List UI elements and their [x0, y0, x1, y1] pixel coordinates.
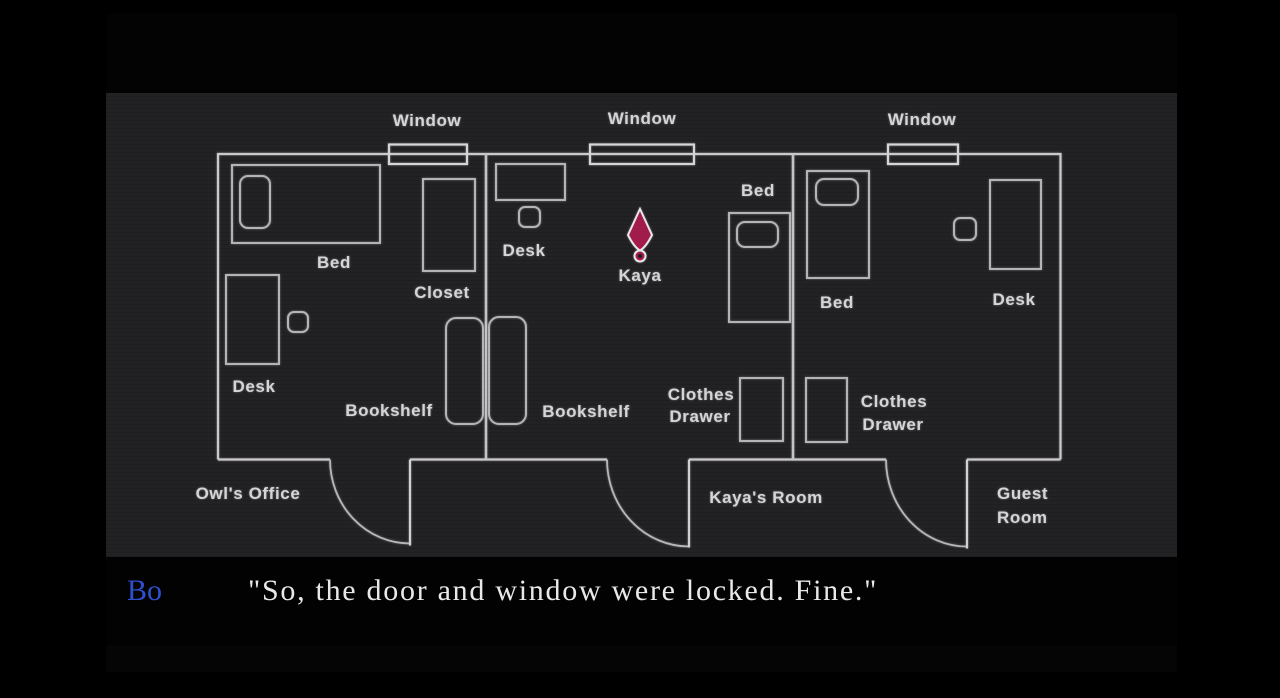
svg-text:Desk: Desk: [502, 241, 545, 260]
svg-text:Drawer: Drawer: [862, 415, 923, 434]
svg-text:Drawer: Drawer: [669, 407, 730, 426]
svg-text:Owl's Office: Owl's Office: [196, 484, 301, 503]
svg-text:Window: Window: [608, 109, 677, 128]
svg-text:Clothes: Clothes: [668, 385, 735, 404]
svg-text:Room: Room: [997, 508, 1048, 527]
svg-text:Bookshelf: Bookshelf: [345, 401, 433, 420]
svg-text:Window: Window: [393, 111, 462, 130]
svg-text:Guest: Guest: [997, 484, 1048, 503]
svg-text:Clothes: Clothes: [861, 392, 928, 411]
svg-text:Kaya: Kaya: [618, 266, 661, 285]
svg-text:Bookshelf: Bookshelf: [542, 402, 630, 421]
svg-text:Desk: Desk: [992, 290, 1035, 309]
svg-text:Bed: Bed: [741, 181, 775, 200]
svg-text:Desk: Desk: [232, 377, 275, 396]
svg-text:Window: Window: [888, 110, 957, 129]
svg-text:Bed: Bed: [820, 293, 854, 312]
svg-text:Bed: Bed: [317, 253, 351, 272]
svg-text:Kaya's Room: Kaya's Room: [709, 488, 823, 507]
svg-text:Closet: Closet: [414, 283, 470, 302]
